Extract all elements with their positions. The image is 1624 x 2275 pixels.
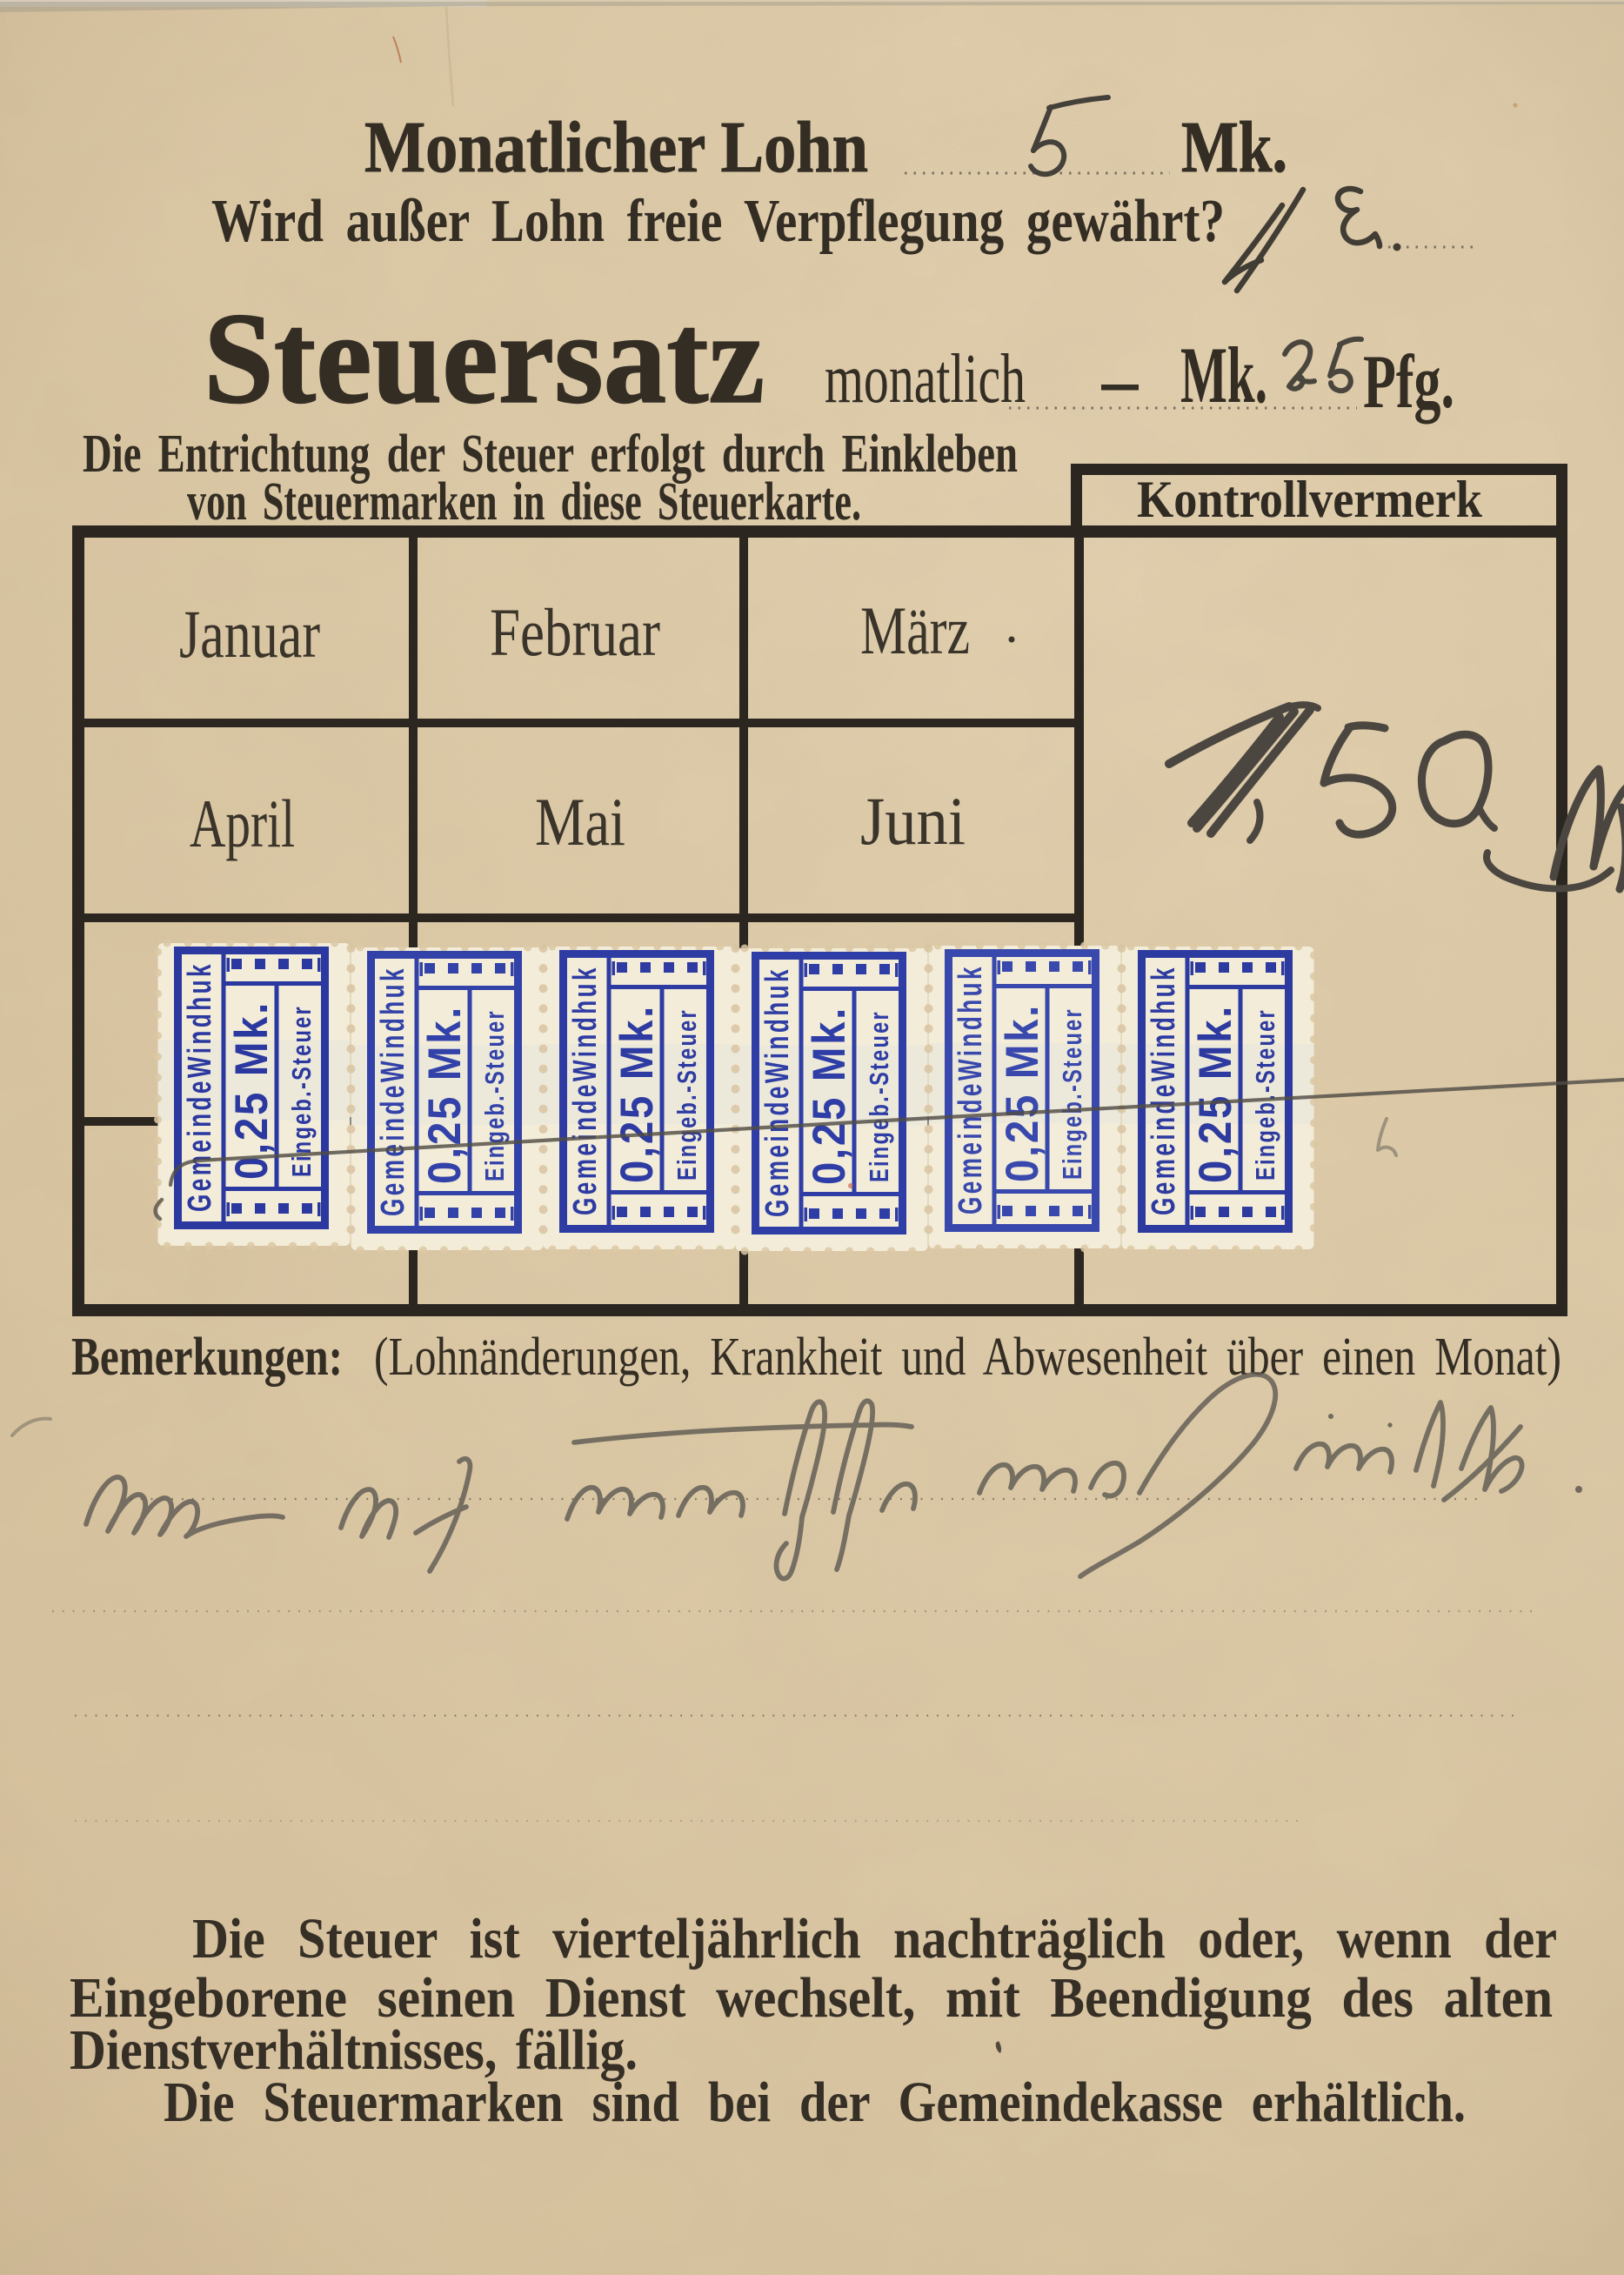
svg-text:Eingeb.-Steuer: Eingeb.-Steuer: [286, 1005, 317, 1177]
svg-text:Eingeb.-Steuer: Eingeb.-Steuer: [1057, 1007, 1087, 1180]
svg-text:0,25 Mk.: 0,25 Mk.: [612, 1004, 663, 1183]
svg-text:(Lohnänderungen, Krankheit und: (Lohnänderungen, Krankheit und Abwesenhe…: [374, 1328, 1561, 1387]
svg-text:April: April: [190, 786, 295, 861]
svg-text:GemeindeWindhuk: GemeindeWindhuk: [952, 964, 989, 1214]
svg-text:Eingeb.-Steuer: Eingeb.-Steuer: [672, 1008, 702, 1181]
svg-text:Die Steuermarken sind bei der: Die Steuermarken sind bei der Gemeindeka…: [164, 2071, 1466, 2134]
svg-text:Die Steuer ist vierteljährlich: Die Steuer ist vierteljährlich nachträgl…: [192, 1907, 1557, 1971]
svg-text:Februar: Februar: [490, 594, 660, 670]
svg-text:monatlich: monatlich: [825, 341, 1026, 418]
svg-text:Mk.: Mk.: [1181, 107, 1287, 188]
svg-text:Eingeb.-Steuer: Eingeb.-Steuer: [479, 1009, 510, 1181]
svg-text:Januar: Januar: [179, 596, 320, 672]
svg-text:Wird außer Lohn freie Verpfleg: Wird außer Lohn freie Verpflegung gewähr…: [211, 188, 1225, 255]
svg-text:GemeindeWindhuk: GemeindeWindhuk: [567, 965, 604, 1215]
svg-text:GemeindeWindhuk: GemeindeWindhuk: [1146, 965, 1182, 1215]
svg-text:0,25 Mk.: 0,25 Mk.: [226, 1000, 277, 1180]
svg-text:GemeindeWindhuk: GemeindeWindhuk: [182, 961, 218, 1212]
svg-text:Pfg.: Pfg.: [1363, 340, 1454, 425]
svg-text:von Steuermarken in diese Steu: von Steuermarken in diese Steuerkarte.: [187, 472, 861, 532]
svg-text:Monatlicher Lohn: Monatlicher Lohn: [364, 107, 868, 188]
svg-text:Mai: Mai: [535, 784, 625, 860]
svg-text:Eingeb.-Steuer: Eingeb.-Steuer: [1250, 1008, 1280, 1181]
svg-text:Kontrollvermerk: Kontrollvermerk: [1137, 471, 1483, 528]
svg-text:GemeindeWindhuk: GemeindeWindhuk: [759, 967, 796, 1217]
svg-text:Bemerkungen:: Bemerkungen:: [71, 1328, 343, 1387]
svg-text:0,25 Mk.: 0,25 Mk.: [804, 1006, 855, 1185]
svg-text:Juni: Juni: [860, 783, 966, 859]
svg-text:Steuersatz: Steuersatz: [204, 286, 765, 431]
svg-text:0,25 Mk.: 0,25 Mk.: [419, 1005, 471, 1184]
svg-text:Mk.: Mk.: [1180, 331, 1267, 419]
svg-text:0,25 Mk.: 0,25 Mk.: [1190, 1004, 1241, 1183]
svg-text:Eingeb.-Steuer: Eingeb.-Steuer: [864, 1010, 894, 1182]
svg-text:GemeindeWindhuk: GemeindeWindhuk: [375, 966, 411, 1216]
svg-text:0,25 Mk.: 0,25 Mk.: [997, 1003, 1048, 1182]
svg-text:März: März: [860, 592, 970, 668]
